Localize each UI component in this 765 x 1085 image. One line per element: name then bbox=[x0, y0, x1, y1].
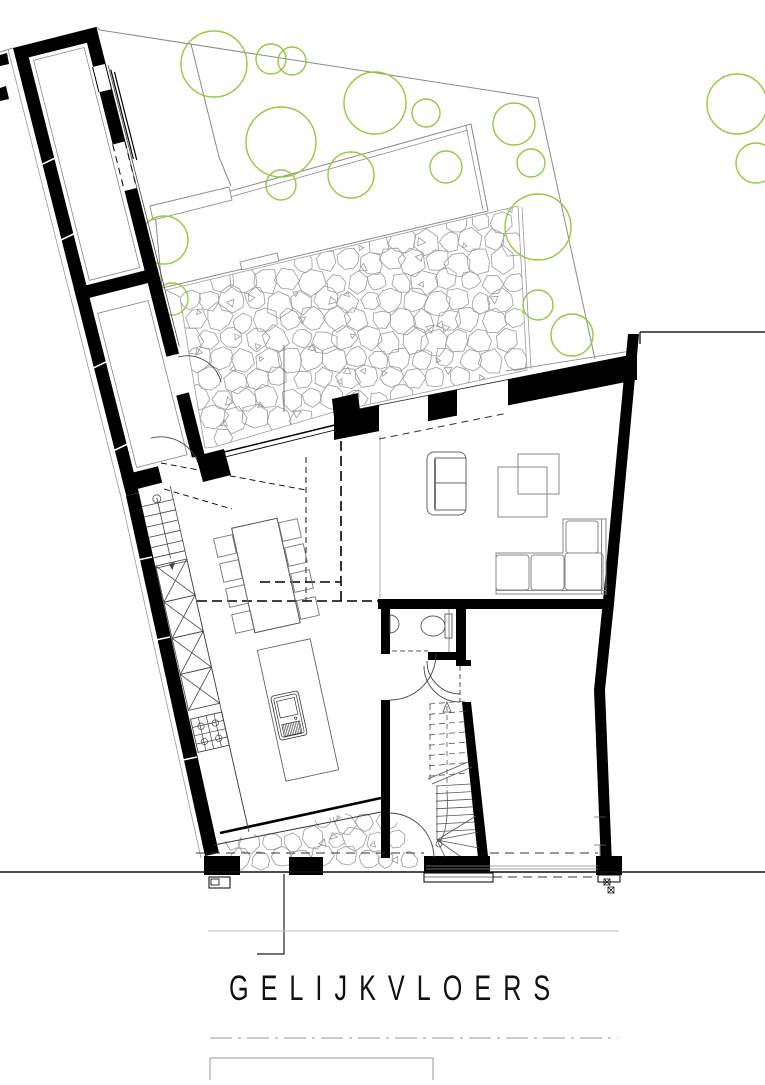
svg-text:GELIJKVLOERS: GELIJKVLOERS bbox=[229, 969, 562, 1008]
